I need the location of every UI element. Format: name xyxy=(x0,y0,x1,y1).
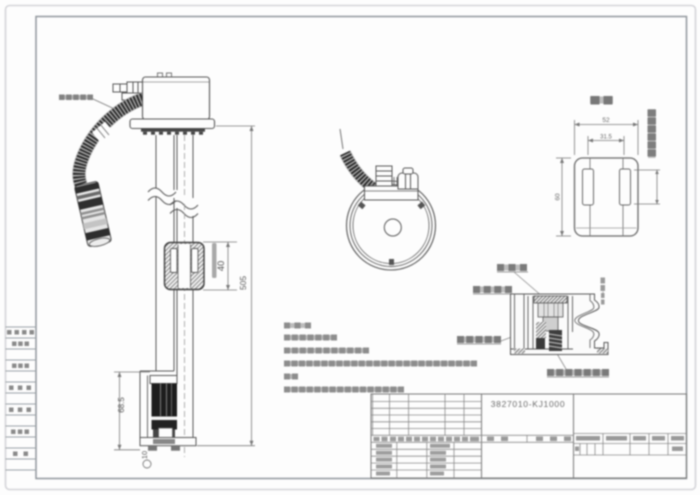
svg-text:3827010-KJ1000: 3827010-KJ1000 xyxy=(491,399,566,409)
svg-text:40: 40 xyxy=(216,261,227,272)
svg-text:60: 60 xyxy=(555,193,562,201)
svg-text:505: 505 xyxy=(238,276,248,290)
svg-text:52: 52 xyxy=(602,117,610,124)
svg-text:31.5: 31.5 xyxy=(600,135,612,141)
svg-text:10: 10 xyxy=(140,451,149,459)
svg-text:68.5: 68.5 xyxy=(117,397,126,413)
